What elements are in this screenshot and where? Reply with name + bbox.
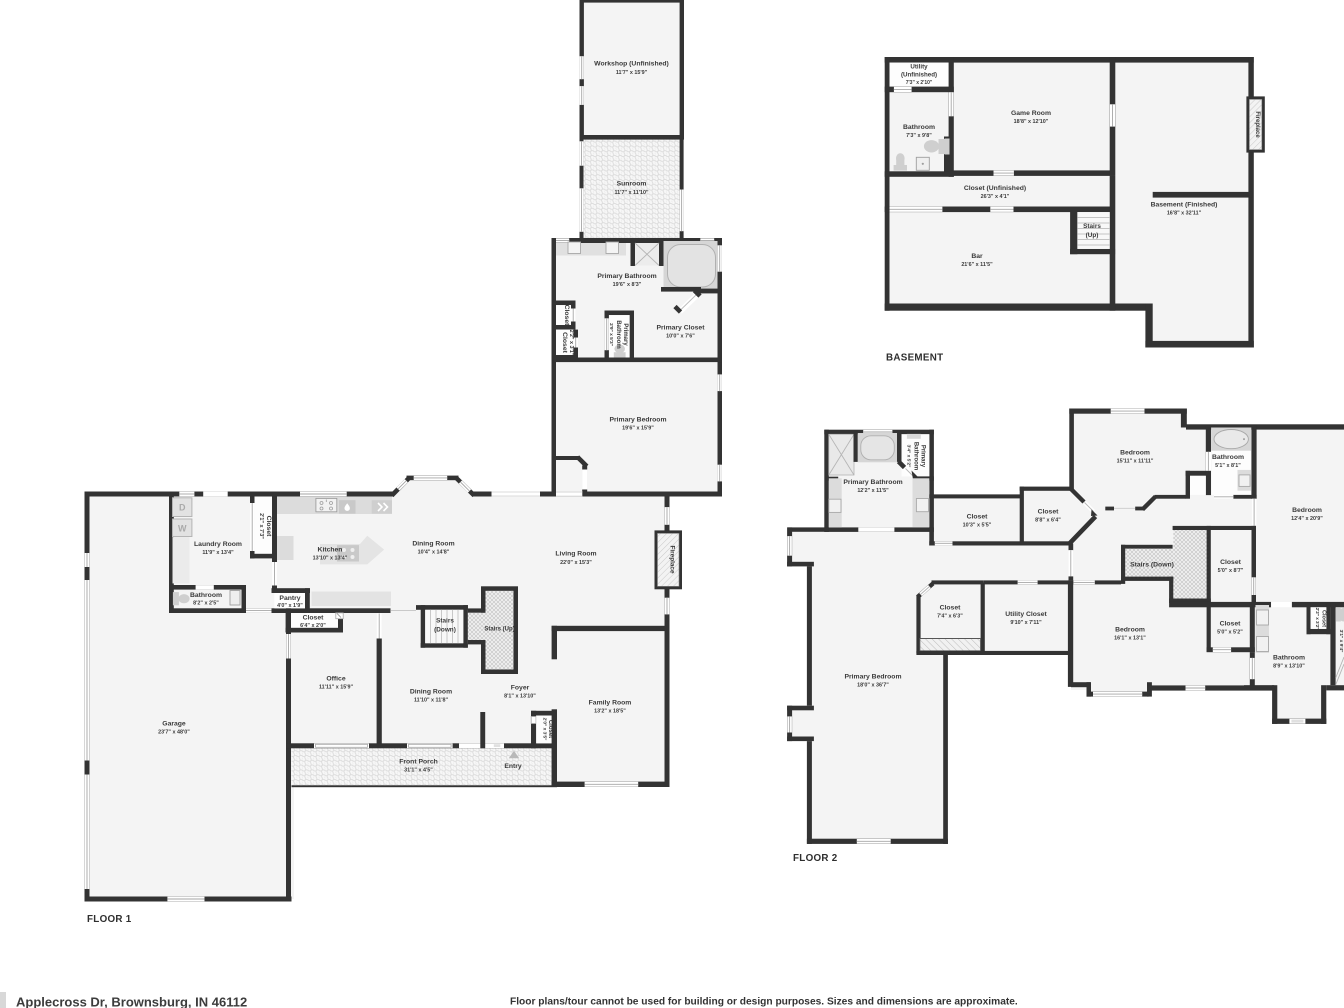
svg-text:2'1" x 7'3": 2'1" x 7'3" bbox=[258, 513, 264, 539]
svg-text:3'1" x 9'4": 3'1" x 9'4" bbox=[1338, 630, 1344, 653]
svg-text:Closet: Closet bbox=[967, 514, 989, 521]
svg-text:11'10" x 11'8": 11'10" x 11'8" bbox=[414, 698, 449, 704]
svg-text:7'4" x 6'3": 7'4" x 6'3" bbox=[937, 614, 963, 620]
svg-text:Kitchen: Kitchen bbox=[318, 547, 343, 554]
svg-text:Stairs: Stairs bbox=[436, 618, 454, 625]
svg-text:21'6" x 11'5": 21'6" x 11'5" bbox=[961, 262, 993, 268]
svg-text:FLOOR 2: FLOOR 2 bbox=[793, 853, 838, 864]
svg-text:D: D bbox=[179, 503, 186, 513]
svg-text:7'3" x 2'10": 7'3" x 2'10" bbox=[906, 80, 933, 86]
svg-text:11'7" x 11'10": 11'7" x 11'10" bbox=[614, 190, 649, 196]
svg-text:Game Room: Game Room bbox=[1011, 110, 1051, 117]
svg-text:6'4" x 2'0": 6'4" x 2'0" bbox=[300, 623, 326, 629]
svg-text:Workshop (Unfinished): Workshop (Unfinished) bbox=[594, 61, 669, 68]
svg-text:Living Room: Living Room bbox=[555, 551, 596, 558]
svg-text:5'1" x 8'1": 5'1" x 8'1" bbox=[1215, 463, 1241, 469]
svg-text:22'0" x 15'3": 22'0" x 15'3" bbox=[560, 560, 592, 566]
svg-text:19'6" x 15'9": 19'6" x 15'9" bbox=[622, 426, 654, 432]
svg-text:Closet: Closet bbox=[1321, 610, 1327, 627]
svg-text:2'2" x 3'1": 2'2" x 3'1" bbox=[568, 330, 574, 356]
svg-text:Primary Bathroom: Primary Bathroom bbox=[843, 479, 902, 486]
svg-text:(Up): (Up) bbox=[1086, 232, 1099, 239]
svg-text:2'9" x 5'3": 2'9" x 5'3" bbox=[608, 323, 614, 346]
svg-text:8'2" x 2'5": 8'2" x 2'5" bbox=[193, 601, 219, 607]
svg-text:2'0" x 3'5": 2'0" x 3'5" bbox=[542, 718, 548, 741]
svg-text:11'7" x 15'9": 11'7" x 15'9" bbox=[616, 70, 648, 76]
svg-text:Stairs (Up): Stairs (Up) bbox=[484, 627, 514, 633]
svg-text:Bathroom: Bathroom bbox=[1212, 454, 1244, 461]
svg-text:23'7" x 48'0": 23'7" x 48'0" bbox=[158, 730, 190, 736]
svg-text:31'1" x 4'5": 31'1" x 4'5" bbox=[404, 767, 433, 773]
svg-text:Office: Office bbox=[326, 676, 345, 683]
svg-text:Closet: Closet bbox=[940, 605, 962, 612]
svg-text:Closet: Closet bbox=[1220, 559, 1242, 566]
svg-text:Foyer: Foyer bbox=[511, 685, 530, 692]
svg-text:2'2" x 3'2": 2'2" x 3'2" bbox=[1315, 608, 1320, 630]
svg-text:Bathroom: Bathroom bbox=[1273, 655, 1305, 662]
svg-text:Fireplace: Fireplace bbox=[669, 545, 676, 574]
svg-text:FLOOR 1: FLOOR 1 bbox=[87, 914, 132, 925]
svg-text:Sunroom: Sunroom bbox=[617, 181, 647, 188]
svg-text:Family Room: Family Room bbox=[589, 700, 632, 707]
svg-text:10'0" x 7'6": 10'0" x 7'6" bbox=[666, 334, 695, 340]
svg-text:Bedroom: Bedroom bbox=[1292, 507, 1322, 514]
svg-text:Primary Bedroom: Primary Bedroom bbox=[844, 674, 901, 681]
svg-text:Dining Room: Dining Room bbox=[410, 689, 452, 696]
svg-text:16'1" x 13'1": 16'1" x 13'1" bbox=[1114, 636, 1146, 642]
svg-text:Laundry Room: Laundry Room bbox=[194, 541, 242, 548]
svg-text:19'6" x 8'3": 19'6" x 8'3" bbox=[613, 282, 642, 288]
svg-text:10'4" x 14'8": 10'4" x 14'8" bbox=[418, 550, 450, 556]
svg-text:13'10" x 13'4": 13'10" x 13'4" bbox=[313, 556, 348, 562]
svg-text:Dining Room: Dining Room bbox=[412, 541, 454, 548]
svg-text:Closet: Closet bbox=[303, 615, 325, 622]
svg-text:8'1" x 13'10": 8'1" x 13'10" bbox=[504, 694, 536, 700]
svg-text:7'3" x 9'8": 7'3" x 9'8" bbox=[906, 133, 932, 139]
svg-text:8'9" x 13'10": 8'9" x 13'10" bbox=[1273, 664, 1305, 670]
svg-text:BASEMENT: BASEMENT bbox=[886, 353, 943, 364]
svg-text:Closet (Unfinished): Closet (Unfinished) bbox=[964, 185, 1026, 192]
svg-text:Bathroom: Bathroom bbox=[903, 124, 935, 131]
svg-text:18'8" x 12'10": 18'8" x 12'10" bbox=[1014, 119, 1049, 125]
svg-text:Bathroom: Bathroom bbox=[615, 320, 621, 348]
svg-text:4'0" x 1'9": 4'0" x 1'9" bbox=[277, 603, 303, 609]
svg-text:9'10" x 7'11": 9'10" x 7'11" bbox=[1010, 620, 1042, 626]
svg-text:Closet: Closet bbox=[265, 516, 272, 538]
svg-text:Stairs (Down): Stairs (Down) bbox=[1130, 562, 1174, 569]
svg-text:Primary: Primary bbox=[622, 323, 628, 346]
svg-text:Primary Bathroom: Primary Bathroom bbox=[597, 273, 656, 280]
svg-text:5'0" x 8'7": 5'0" x 8'7" bbox=[1218, 568, 1244, 574]
svg-text:Closet: Closet bbox=[1220, 621, 1242, 628]
svg-text:Primary: Primary bbox=[920, 445, 926, 468]
svg-text:Bedroom: Bedroom bbox=[1115, 627, 1145, 634]
svg-text:10'3" x 5'5": 10'3" x 5'5" bbox=[963, 523, 992, 529]
svg-text:15'11" x 11'11": 15'11" x 11'11" bbox=[1117, 459, 1154, 465]
svg-text:5'0" x 5'2": 5'0" x 5'2" bbox=[1217, 630, 1243, 636]
svg-text:11'11" x 15'9": 11'11" x 15'9" bbox=[319, 685, 354, 691]
svg-text:Bathroom: Bathroom bbox=[190, 592, 222, 599]
svg-text:Applecross Dr, Brownsburg, IN: Applecross Dr, Brownsburg, IN 46112 bbox=[16, 995, 247, 1008]
svg-text:Stairs: Stairs bbox=[1083, 223, 1101, 230]
svg-text:Floor plans/tour cannot be use: Floor plans/tour cannot be used for buil… bbox=[510, 997, 1018, 1008]
svg-text:3'4" x 5'2": 3'4" x 5'2" bbox=[906, 445, 912, 468]
svg-text:16'8" x 32'11": 16'8" x 32'11" bbox=[1167, 211, 1202, 217]
svg-text:Closet: Closet bbox=[1038, 509, 1060, 516]
svg-text:(Down): (Down) bbox=[434, 627, 456, 634]
svg-text:Utility: Utility bbox=[910, 64, 928, 71]
svg-text:13'2" x 18'5": 13'2" x 18'5" bbox=[594, 709, 626, 715]
svg-text:Bathroom: Bathroom bbox=[913, 442, 919, 470]
svg-text:8'8" x 6'4": 8'8" x 6'4" bbox=[1035, 518, 1061, 524]
svg-text:26'3" x 4'1": 26'3" x 4'1" bbox=[981, 194, 1010, 200]
svg-text:(Unfinished): (Unfinished) bbox=[901, 72, 937, 79]
svg-text:Primary Closet: Primary Closet bbox=[657, 325, 706, 332]
svg-text:Garage: Garage bbox=[162, 721, 186, 728]
svg-text:Primary Bedroom: Primary Bedroom bbox=[609, 417, 666, 424]
svg-text:Closet: Closet bbox=[563, 305, 570, 327]
svg-text:Utility Closet: Utility Closet bbox=[1005, 611, 1047, 618]
svg-text:W: W bbox=[178, 524, 187, 534]
svg-text:Bedroom: Bedroom bbox=[1120, 450, 1150, 457]
svg-text:Entry: Entry bbox=[504, 763, 522, 770]
svg-text:Closet: Closet bbox=[561, 332, 568, 354]
svg-text:Basement (Finished): Basement (Finished) bbox=[1151, 202, 1218, 209]
svg-text:18'0" x 36'7": 18'0" x 36'7" bbox=[857, 683, 889, 689]
svg-text:Pantry: Pantry bbox=[279, 595, 300, 602]
svg-text:Front Porch: Front Porch bbox=[399, 759, 438, 766]
svg-text:Bar: Bar bbox=[971, 253, 983, 260]
svg-text:12'4" x 20'9": 12'4" x 20'9" bbox=[1291, 516, 1323, 522]
svg-text:Fireplace: Fireplace bbox=[1254, 111, 1260, 138]
svg-text:11'9" x 13'4": 11'9" x 13'4" bbox=[202, 550, 234, 556]
svg-text:12'2" x 11'5": 12'2" x 11'5" bbox=[857, 488, 889, 494]
